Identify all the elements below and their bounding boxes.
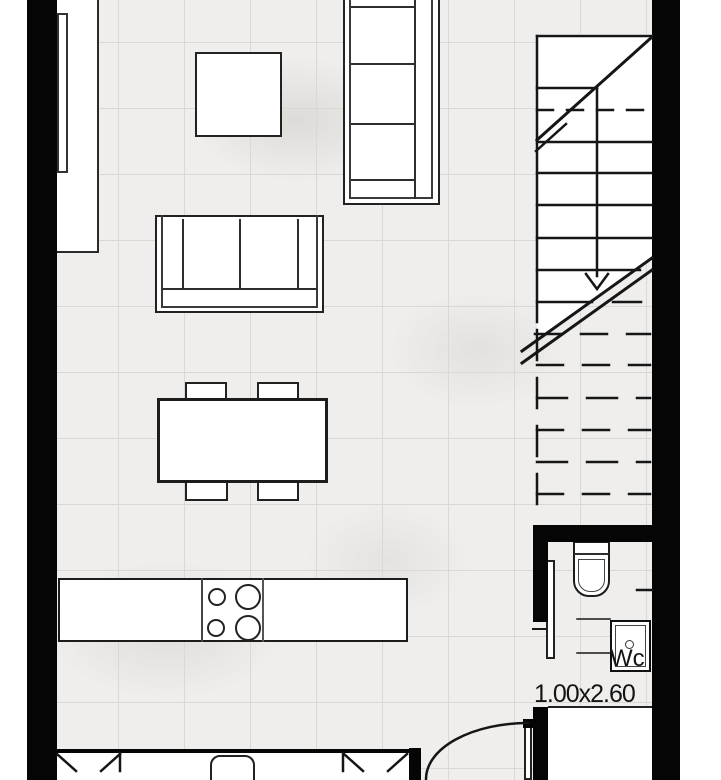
staircase-lines <box>522 36 652 522</box>
window-marks <box>57 753 407 771</box>
entry-door-arc <box>426 723 528 779</box>
wc-ticks <box>533 590 652 653</box>
floorplan-canvas: Wc 1.00x2.60 <box>0 0 721 780</box>
stair-break-line <box>522 270 652 363</box>
wc-room-label: Wc <box>610 645 645 673</box>
wc-dimensions-label: 1.00x2.60 <box>534 680 635 709</box>
stair-break-line <box>522 258 652 351</box>
